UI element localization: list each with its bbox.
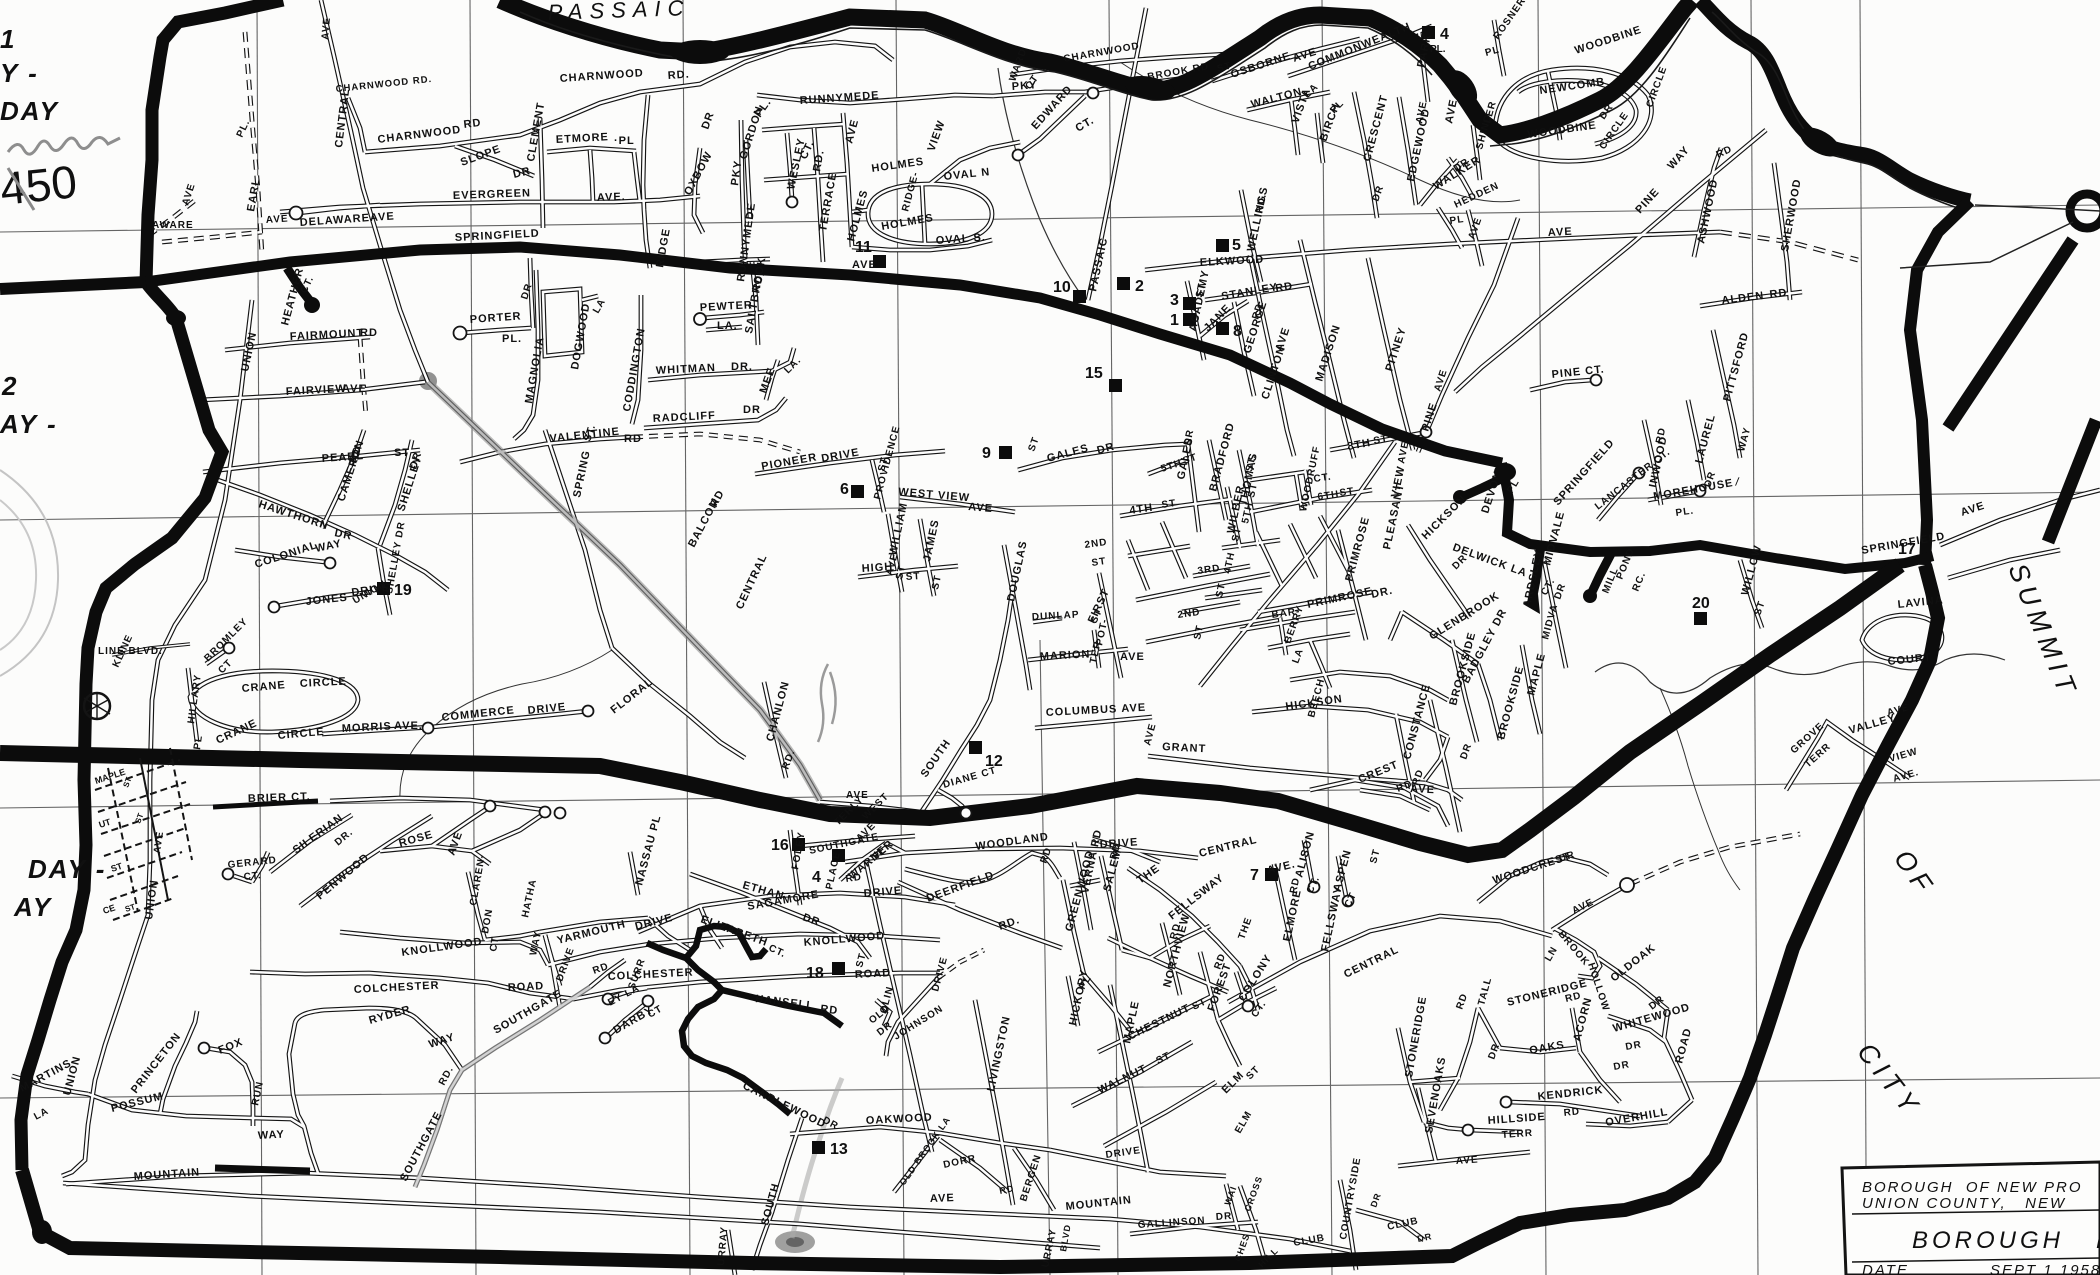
svg-text:AVE: AVE xyxy=(1455,1154,1479,1167)
svg-text:AVE: AVE xyxy=(1548,226,1573,239)
svg-text:ST: ST xyxy=(1161,498,1177,511)
svg-text:11: 11 xyxy=(855,239,872,256)
svg-text:AWARE: AWARE xyxy=(152,220,194,231)
svg-text:5: 5 xyxy=(1232,237,1241,254)
svg-text:PL: PL xyxy=(1449,214,1465,227)
svg-text:ST: ST xyxy=(1339,486,1355,499)
svg-text:AVE: AVE xyxy=(265,213,289,226)
svg-text:1: 1 xyxy=(0,24,16,54)
svg-text:AY -: AY - xyxy=(0,409,58,439)
svg-text:2: 2 xyxy=(1135,278,1144,295)
svg-text:3: 3 xyxy=(1170,292,1179,309)
svg-text:RD: RD xyxy=(1769,287,1788,301)
svg-text:AVE: AVE xyxy=(1120,651,1145,663)
svg-text:BOROUGH M: BOROUGH M xyxy=(1912,1227,2100,1254)
svg-text:CIRCLE: CIRCLE xyxy=(300,676,348,690)
svg-text:RD: RD xyxy=(463,117,482,131)
svg-text:HIGH: HIGH xyxy=(861,561,893,575)
svg-text:DAY: DAY xyxy=(0,96,60,126)
svg-text:RD.: RD. xyxy=(667,68,690,82)
svg-text:RD: RD xyxy=(820,1003,839,1017)
svg-text:18: 18 xyxy=(806,965,824,982)
svg-text:DR.: DR. xyxy=(731,361,753,373)
svg-text:AVE: AVE xyxy=(320,17,333,41)
svg-text:DR: DR xyxy=(1215,1211,1232,1223)
svg-text:ROAD: ROAD xyxy=(855,967,892,981)
svg-text:PL.: PL. xyxy=(502,333,522,345)
svg-text:ROAD: ROAD xyxy=(508,980,545,994)
svg-text:AVE: AVE xyxy=(968,501,994,515)
svg-text:RD: RD xyxy=(1563,1106,1581,1119)
svg-text:ST: ST xyxy=(1091,556,1107,569)
svg-text:ST: ST xyxy=(394,447,410,459)
svg-text:AVE.: AVE. xyxy=(597,191,626,204)
svg-text:20: 20 xyxy=(1692,595,1710,612)
svg-text:15: 15 xyxy=(1085,365,1103,382)
svg-text:WAY: WAY xyxy=(258,1129,286,1142)
svg-text:7: 7 xyxy=(1250,867,1259,884)
svg-text:BRIER CT.: BRIER CT. xyxy=(248,791,311,805)
svg-text:450: 450 xyxy=(0,155,79,215)
svg-text:1: 1 xyxy=(1170,312,1179,329)
svg-text:8: 8 xyxy=(1233,323,1242,340)
svg-text:CT.: CT. xyxy=(243,870,262,883)
svg-text:LA.: LA. xyxy=(717,320,738,332)
svg-text:PL.: PL. xyxy=(1430,44,1446,55)
svg-text:RD: RD xyxy=(360,327,378,339)
svg-text:6: 6 xyxy=(840,481,849,498)
svg-text:16: 16 xyxy=(771,837,789,854)
svg-text:AVE: AVE xyxy=(852,259,877,271)
svg-text:AVE: AVE xyxy=(1410,783,1435,796)
svg-text:PL: PL xyxy=(192,734,205,750)
svg-text:9: 9 xyxy=(982,445,991,462)
svg-text:AVE.: AVE. xyxy=(394,720,423,732)
svg-text:13: 13 xyxy=(830,1141,848,1158)
svg-text:DAY -: DAY - xyxy=(28,854,106,884)
svg-text:·PL: ·PL xyxy=(614,135,635,147)
svg-text:RD: RD xyxy=(624,433,642,445)
svg-text:GRANT: GRANT xyxy=(1162,741,1207,755)
svg-text:AVE: AVE xyxy=(930,1192,955,1205)
svg-text:BOROUGH OF NEW PRO: BOROUGH OF NEW PRO xyxy=(1862,1179,2083,1196)
svg-text:AY: AY xyxy=(13,892,53,922)
svg-text:10: 10 xyxy=(1053,279,1071,296)
svg-text:ST: ST xyxy=(905,571,921,583)
svg-text:TERR: TERR xyxy=(1501,1128,1533,1141)
svg-text:2: 2 xyxy=(1,371,18,401)
svg-text:AVE: AVE xyxy=(342,383,367,395)
svg-text:DATE: DATE xyxy=(1862,1262,1909,1275)
svg-text:4: 4 xyxy=(812,869,821,886)
svg-text:DR: DR xyxy=(743,404,761,416)
svg-text:UNION COUNTY, NEW: UNION COUNTY, NEW xyxy=(1862,1195,2066,1212)
svg-text:Y -: Y - xyxy=(0,58,39,88)
svg-text:SEPT 1 1958: SEPT 1 1958 xyxy=(1990,1262,2100,1275)
svg-text:4: 4 xyxy=(1440,26,1449,43)
